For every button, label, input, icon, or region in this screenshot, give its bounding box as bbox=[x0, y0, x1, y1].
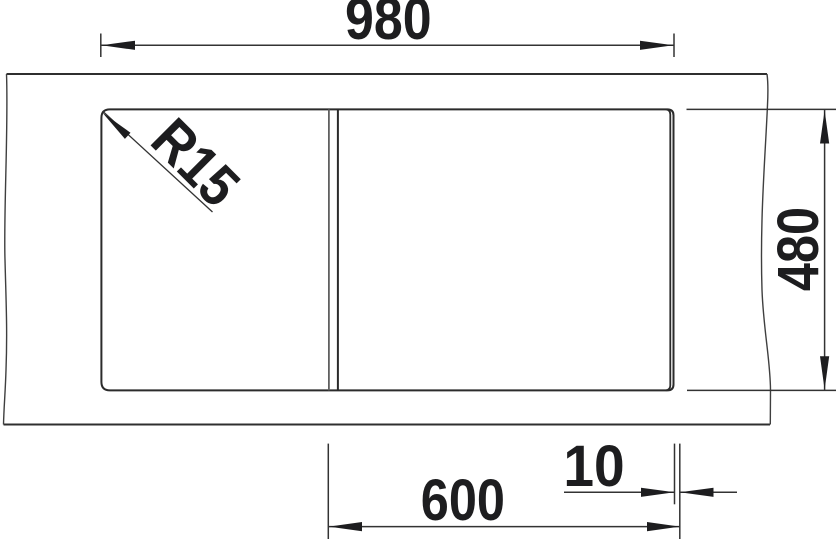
svg-text:480: 480 bbox=[766, 207, 831, 291]
svg-text:10: 10 bbox=[563, 434, 624, 499]
svg-text:980: 980 bbox=[345, 0, 432, 52]
svg-text:600: 600 bbox=[421, 468, 505, 533]
svg-text:R15: R15 bbox=[139, 106, 252, 219]
